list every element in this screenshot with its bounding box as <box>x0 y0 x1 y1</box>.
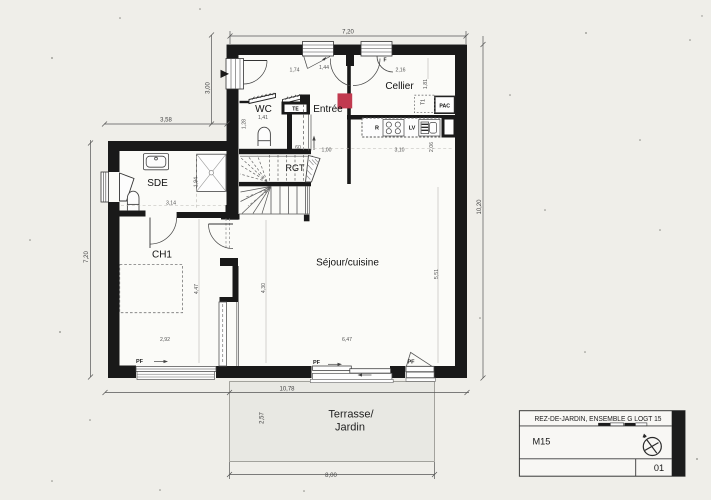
svg-text:01: 01 <box>654 463 664 473</box>
svg-text:LV: LV <box>409 126 416 132</box>
svg-text:7,20: 7,20 <box>342 30 354 36</box>
svg-text:3,00: 3,00 <box>206 82 212 94</box>
svg-text:Terrasse/: Terrasse/ <box>328 409 374 421</box>
svg-text:RGT: RGT <box>286 163 306 173</box>
svg-text:1,44: 1,44 <box>319 65 329 71</box>
svg-text:WC: WC <box>255 104 272 115</box>
svg-text:60: 60 <box>295 145 301 151</box>
svg-text:3,10: 3,10 <box>394 148 404 154</box>
svg-text:3,58: 3,58 <box>160 118 172 124</box>
svg-text:1,41: 1,41 <box>258 115 268 121</box>
svg-text:6,47: 6,47 <box>342 337 352 343</box>
svg-text:TE: TE <box>292 106 299 112</box>
svg-text:PF: PF <box>313 360 321 366</box>
svg-text:SDE: SDE <box>147 178 168 189</box>
svg-text:1,81: 1,81 <box>423 79 429 89</box>
svg-text:10,78: 10,78 <box>279 387 295 393</box>
svg-text:CH1: CH1 <box>152 250 172 261</box>
svg-text:Cellier: Cellier <box>385 81 414 92</box>
svg-text:PAC: PAC <box>439 104 450 110</box>
svg-text:10,20: 10,20 <box>477 199 483 215</box>
svg-text:1,94: 1,94 <box>194 177 200 187</box>
svg-text:8,00: 8,00 <box>325 473 337 479</box>
svg-text:R: R <box>375 126 379 132</box>
svg-text:4,30: 4,30 <box>261 283 267 293</box>
svg-text:PF: PF <box>136 359 144 365</box>
svg-text:M15: M15 <box>533 437 551 447</box>
svg-text:Entrée: Entrée <box>313 104 343 115</box>
svg-text:F: F <box>384 58 387 64</box>
svg-text:Jardin: Jardin <box>335 422 365 434</box>
svg-text:REZ-DE-JARDIN, ENSEMBLE G LOGT: REZ-DE-JARDIN, ENSEMBLE G LOGT 15 <box>535 414 662 423</box>
svg-text:1,28: 1,28 <box>242 119 248 129</box>
svg-text:7,20: 7,20 <box>84 251 90 263</box>
svg-text:2,92: 2,92 <box>160 337 170 343</box>
svg-text:4,47: 4,47 <box>194 284 200 294</box>
svg-text:2,06: 2,06 <box>429 142 435 152</box>
svg-text:5,51: 5,51 <box>434 269 440 279</box>
svg-text:Séjour/cuisine: Séjour/cuisine <box>316 258 379 269</box>
svg-text:2,57: 2,57 <box>260 412 266 424</box>
svg-text:1,00: 1,00 <box>321 148 331 154</box>
svg-text:1,74: 1,74 <box>289 68 299 74</box>
svg-text:PF: PF <box>408 360 416 366</box>
svg-text:T1: T1 <box>421 99 427 105</box>
svg-text:3,14: 3,14 <box>166 201 176 207</box>
svg-text:2,16: 2,16 <box>395 68 405 74</box>
